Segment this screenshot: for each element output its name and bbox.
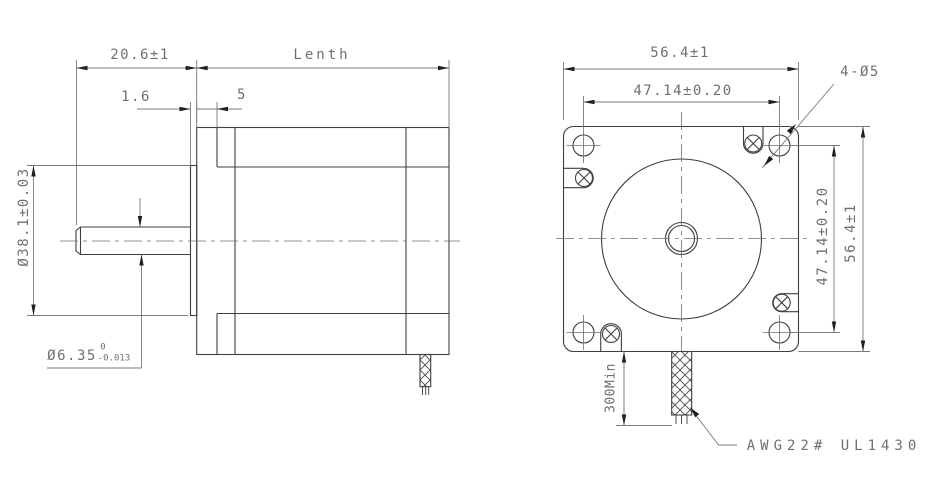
- technical-drawing-svg: [0, 0, 952, 479]
- dim-body-length-label: Lenth: [293, 48, 350, 62]
- dim-pilot-diameter-label: Ø38.1±0.03: [17, 167, 31, 266]
- corner-cut-lines: [217, 167, 449, 314]
- lead-wire-side: [420, 355, 431, 387]
- dim-hole-spacing-h-label: 47.14±0.20: [633, 84, 732, 98]
- side-view: [76, 128, 449, 396]
- pilot-boss: [191, 166, 197, 316]
- dim-shaft-diameter-label: Ø6.35: [47, 349, 97, 363]
- dim-flange-width-label: 56.4±1: [650, 46, 710, 60]
- dim-hole-spacing-v-label: 47.14±0.20: [816, 186, 830, 285]
- dim-pilot-depth-label: 1.6: [121, 90, 151, 104]
- dimension-arrowheads: [31, 66, 865, 426]
- technical-drawing-page: 20.6±1 Lenth 1.6 5 Ø38.1±0.03 Ø6.35 0 -0…: [0, 0, 952, 479]
- dim-front-cap-label: 5: [237, 88, 247, 102]
- dim-shaft-tol-upper: 0: [100, 344, 105, 353]
- lead-wire-front: [672, 352, 692, 416]
- dim-shaft-tol-lower: -0.013: [98, 355, 131, 364]
- side-view-dimensions: [27, 60, 449, 368]
- dim-lead-length-label: 300Min: [605, 363, 618, 413]
- dim-flange-height-label: 56.4±1: [844, 203, 858, 263]
- front-view: [564, 127, 799, 425]
- dim-mounting-holes-label: 4-Ø5: [840, 65, 880, 79]
- dim-shaft-length-label: 20.6±1: [110, 48, 170, 62]
- lead-spec-label: AWG22# UL1430: [747, 439, 922, 453]
- flange-outline: [564, 127, 799, 352]
- wire-strands-front: [676, 415, 687, 424]
- wire-strands-side: [423, 387, 429, 395]
